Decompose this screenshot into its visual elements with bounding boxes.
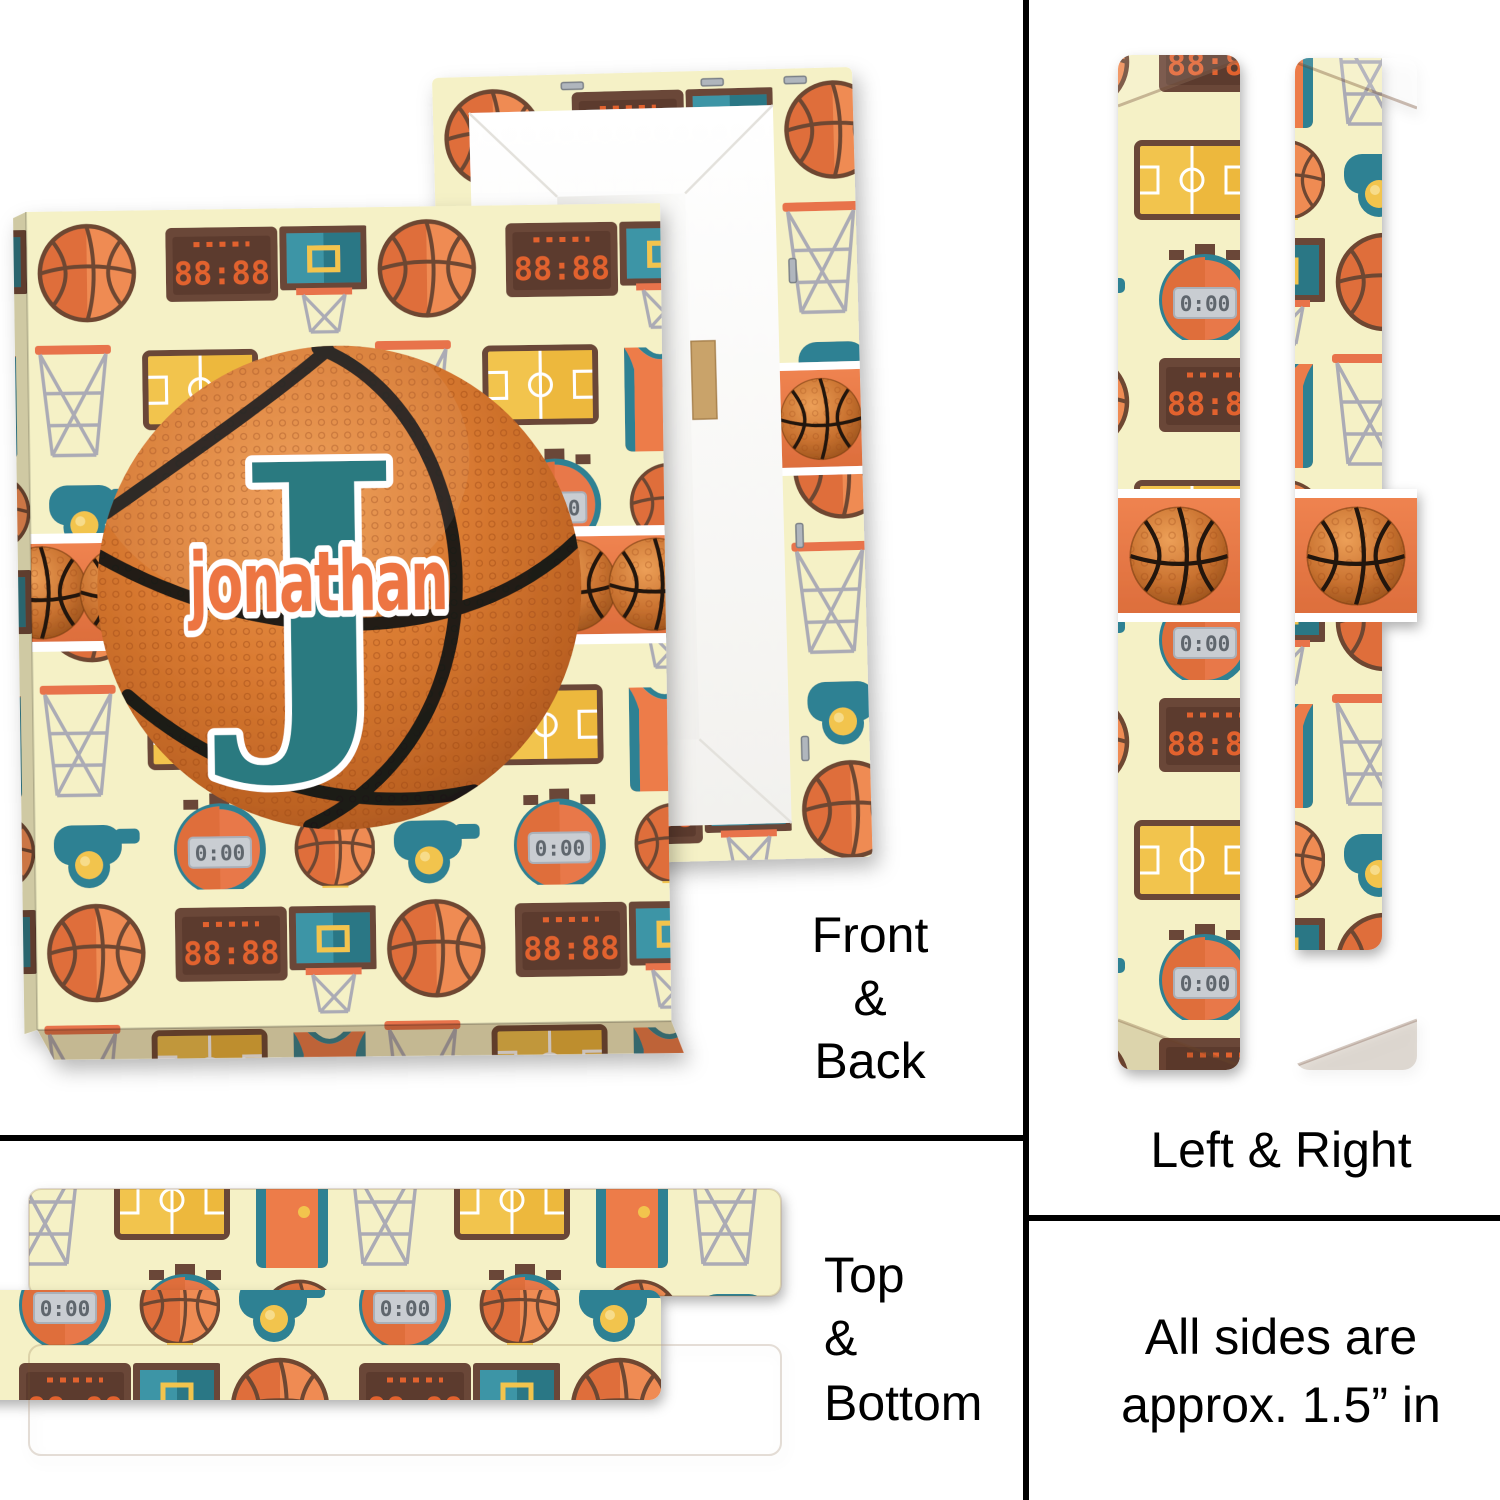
- size-note-line1: All sides are: [1145, 1309, 1417, 1365]
- label-left-right: Left & Right: [1150, 1122, 1411, 1178]
- left-horizontal-divider: [0, 1135, 1029, 1141]
- label-front: Front: [812, 907, 929, 963]
- top-edge-strip: [29, 1189, 781, 1296]
- label-back: Back: [814, 1033, 926, 1089]
- product-mockup-image: 88:88: [0, 0, 1500, 1500]
- label-bottom: Bottom: [824, 1375, 982, 1431]
- wooden-wedge: [691, 341, 717, 420]
- right-horizontal-divider: [1023, 1215, 1500, 1221]
- vertical-divider: [1023, 0, 1029, 1500]
- label-top: Top: [824, 1247, 905, 1303]
- front-canvas-face: J jonathan: [0, 203, 707, 1031]
- left-side-strip: [1118, 55, 1240, 1070]
- label-front-back-amp: &: [853, 970, 886, 1026]
- size-note-line2: approx. 1.5” in: [1121, 1377, 1441, 1433]
- front-canvas: J jonathan: [0, 203, 708, 1063]
- name-text: jonathan: [186, 532, 448, 633]
- label-top-bottom-amp: &: [824, 1310, 857, 1366]
